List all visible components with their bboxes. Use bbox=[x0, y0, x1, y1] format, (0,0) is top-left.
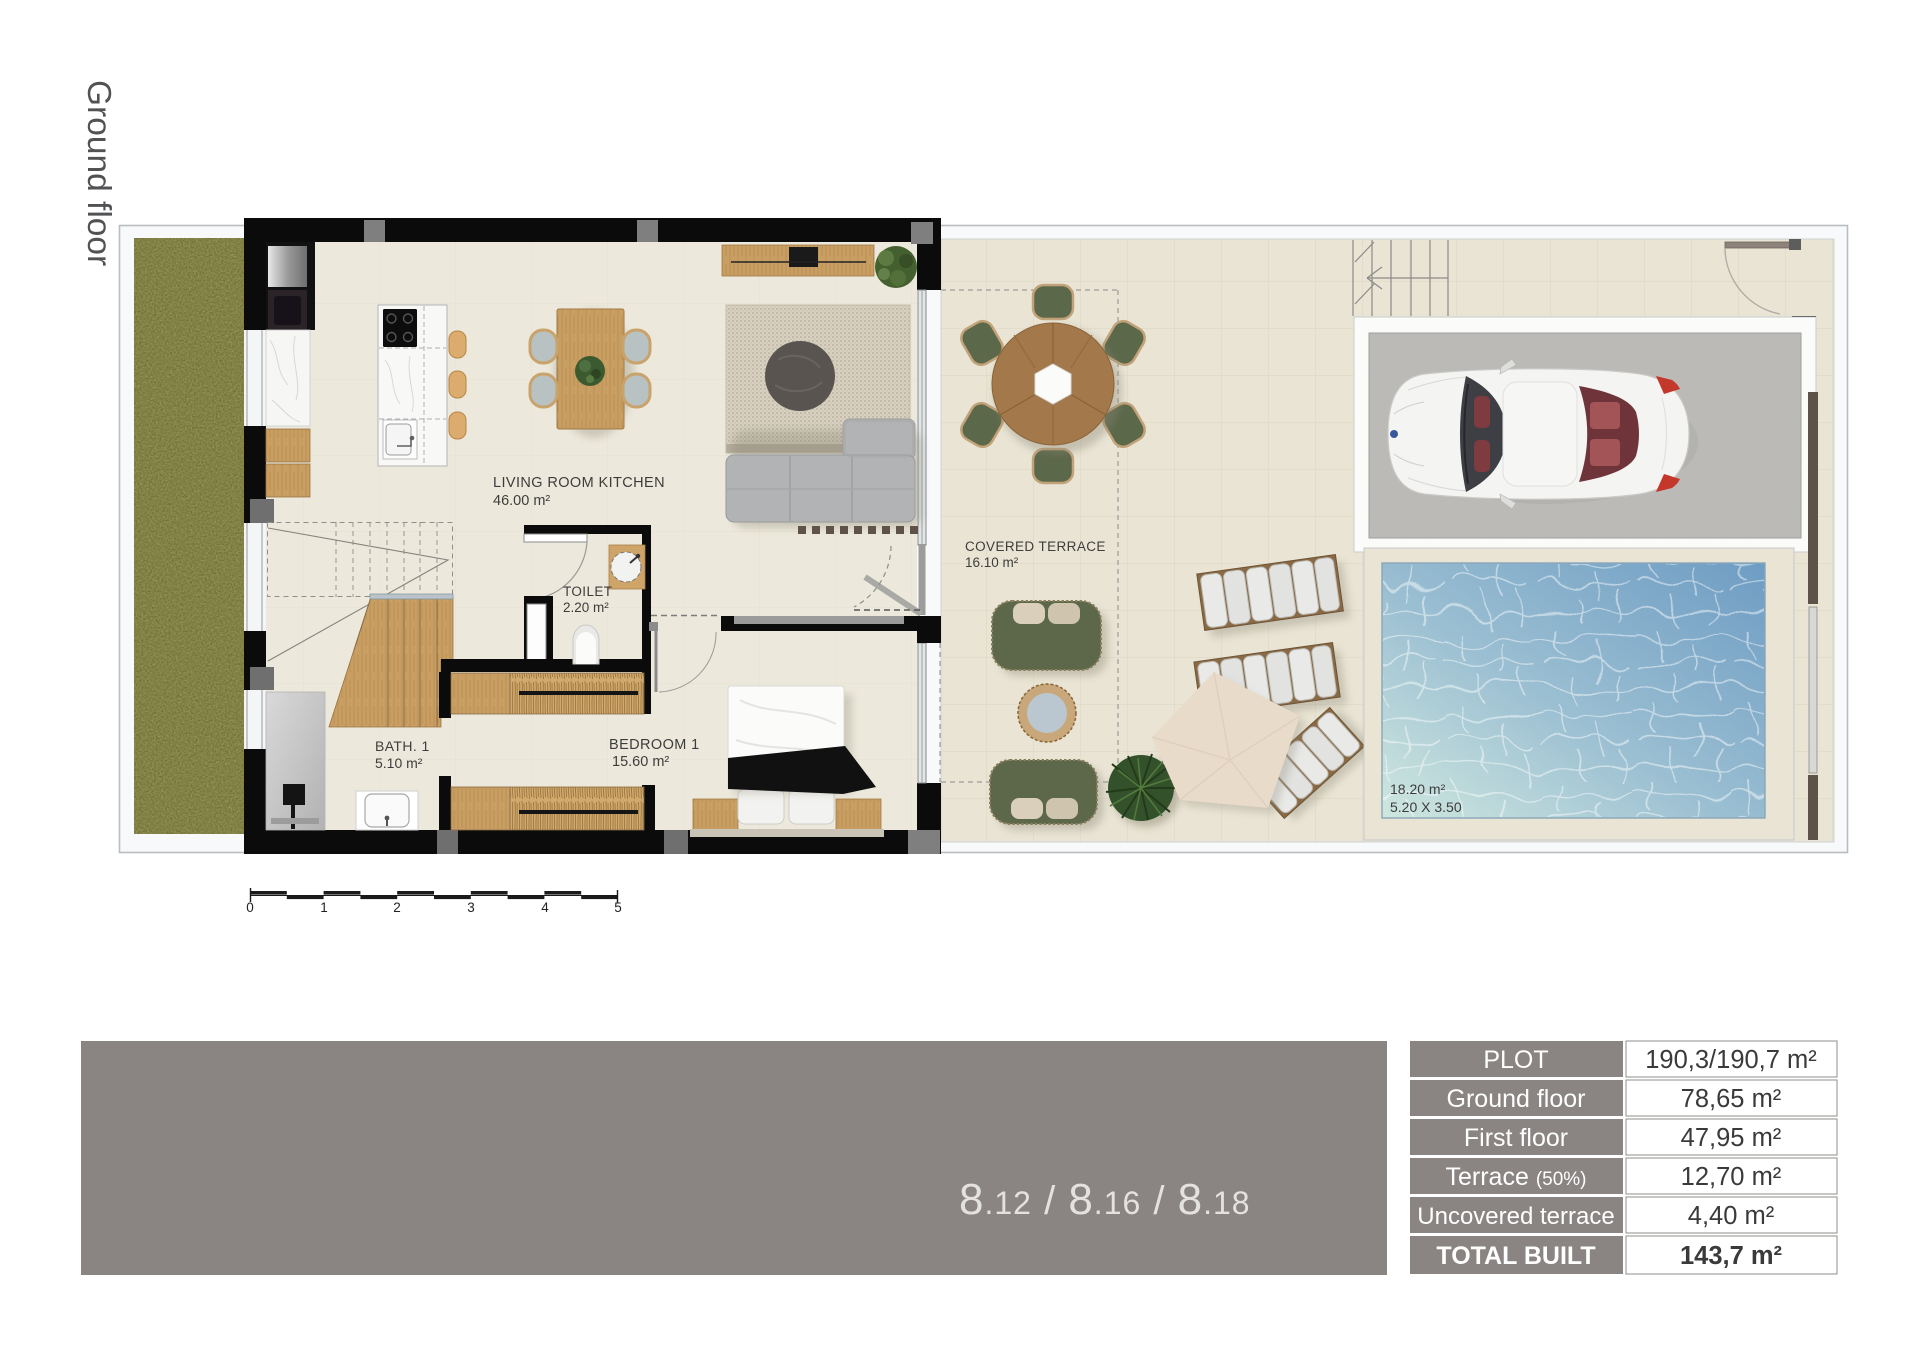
svg-text:Uncovered terrace: Uncovered terrace bbox=[1417, 1203, 1614, 1230]
svg-text:143,7 m²: 143,7 m² bbox=[1680, 1242, 1782, 1270]
svg-text:2: 2 bbox=[393, 900, 401, 915]
svg-text:16.10 m²: 16.10 m² bbox=[965, 555, 1019, 570]
svg-text:5.20 X 3.50: 5.20 X 3.50 bbox=[1390, 799, 1462, 815]
svg-text:18.20 m²: 18.20 m² bbox=[1390, 781, 1446, 797]
svg-text:12,70 m²: 12,70 m² bbox=[1681, 1163, 1782, 1191]
svg-text:5.10 m²: 5.10 m² bbox=[375, 755, 423, 771]
svg-text:COVERED TERRACE: COVERED TERRACE bbox=[965, 539, 1106, 554]
svg-text:TOILET: TOILET bbox=[563, 584, 612, 599]
svg-text:TOTAL BUILT: TOTAL BUILT bbox=[1436, 1242, 1595, 1270]
svg-text:2.20 m²: 2.20 m² bbox=[563, 600, 609, 615]
svg-text:LIVING ROOM KITCHEN: LIVING ROOM KITCHEN bbox=[493, 475, 665, 491]
svg-text:46.00 m²: 46.00 m² bbox=[493, 493, 550, 509]
svg-text:1: 1 bbox=[320, 900, 328, 915]
svg-text:BATH. 1: BATH. 1 bbox=[375, 738, 430, 754]
svg-text:190,3/190,7 m²: 190,3/190,7 m² bbox=[1645, 1046, 1817, 1074]
svg-text:47,95 m²: 47,95 m² bbox=[1681, 1124, 1782, 1152]
svg-text:15.60 m²: 15.60 m² bbox=[612, 754, 669, 770]
svg-text:0: 0 bbox=[246, 900, 254, 915]
svg-text:4: 4 bbox=[541, 900, 549, 915]
svg-text:Ground floor: Ground floor bbox=[1447, 1085, 1586, 1113]
svg-text:5: 5 bbox=[614, 900, 622, 915]
svg-text:PLOT: PLOT bbox=[1483, 1046, 1548, 1074]
svg-text:Ground floor: Ground floor bbox=[80, 80, 117, 266]
svg-text:78,65 m²: 78,65 m² bbox=[1681, 1085, 1782, 1113]
svg-text:3: 3 bbox=[467, 900, 475, 915]
svg-text:4,40 m²: 4,40 m² bbox=[1688, 1202, 1774, 1230]
svg-text:First floor: First floor bbox=[1464, 1124, 1568, 1152]
svg-text:BEDROOM 1: BEDROOM 1 bbox=[609, 737, 700, 753]
